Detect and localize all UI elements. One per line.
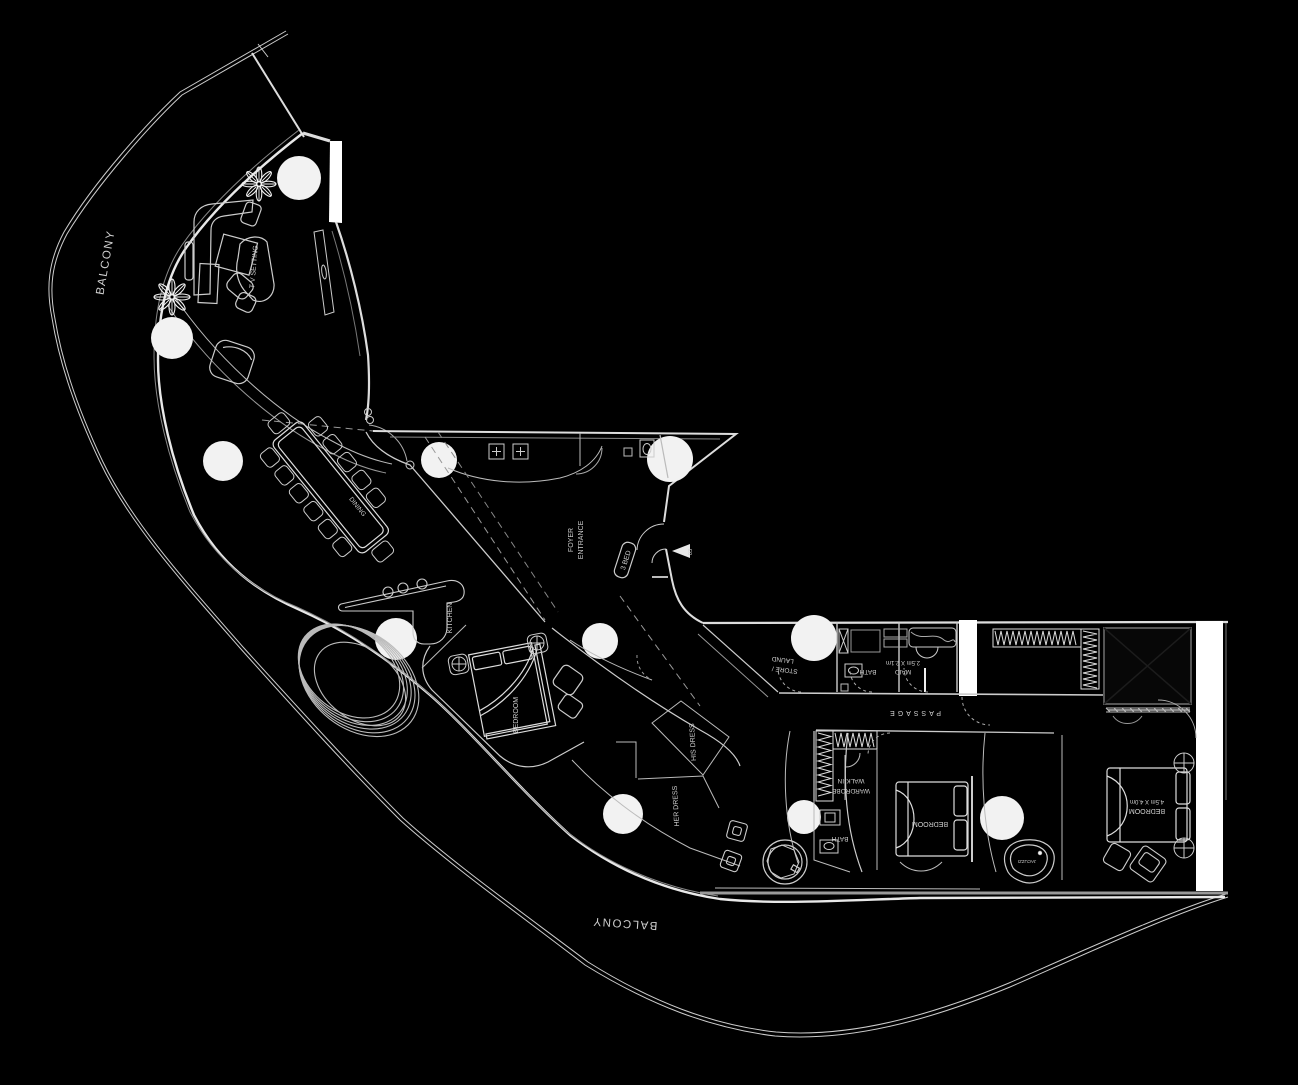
svg-text:MAID: MAID	[895, 668, 912, 675]
svg-text:BATH: BATH	[859, 668, 876, 675]
svg-text:PASSAGE: PASSAGE	[887, 709, 941, 716]
svg-text:4.5m X 4.0m: 4.5m X 4.0m	[1130, 798, 1164, 804]
svg-text:BEDROOM: BEDROOM	[513, 697, 520, 733]
svg-text:BEDROOM: BEDROOM	[1129, 807, 1165, 814]
svg-text:KITCHEN: KITCHEN	[447, 603, 454, 634]
svg-text:BATH: BATH	[831, 835, 848, 842]
svg-text:ENTRANCE: ENTRANCE	[578, 520, 585, 559]
svg-text:BEDROOM: BEDROOM	[912, 820, 948, 827]
svg-text:2.5m X 2.1m: 2.5m X 2.1m	[886, 659, 920, 665]
svg-text:WALK-IN: WALK-IN	[837, 777, 864, 784]
svg-text:WARDROBE: WARDROBE	[831, 787, 870, 794]
svg-text:JACUZZI: JACUZZI	[1018, 859, 1037, 864]
svg-text:FOYER: FOYER	[568, 528, 575, 552]
svg-text:03: 03	[688, 549, 694, 555]
